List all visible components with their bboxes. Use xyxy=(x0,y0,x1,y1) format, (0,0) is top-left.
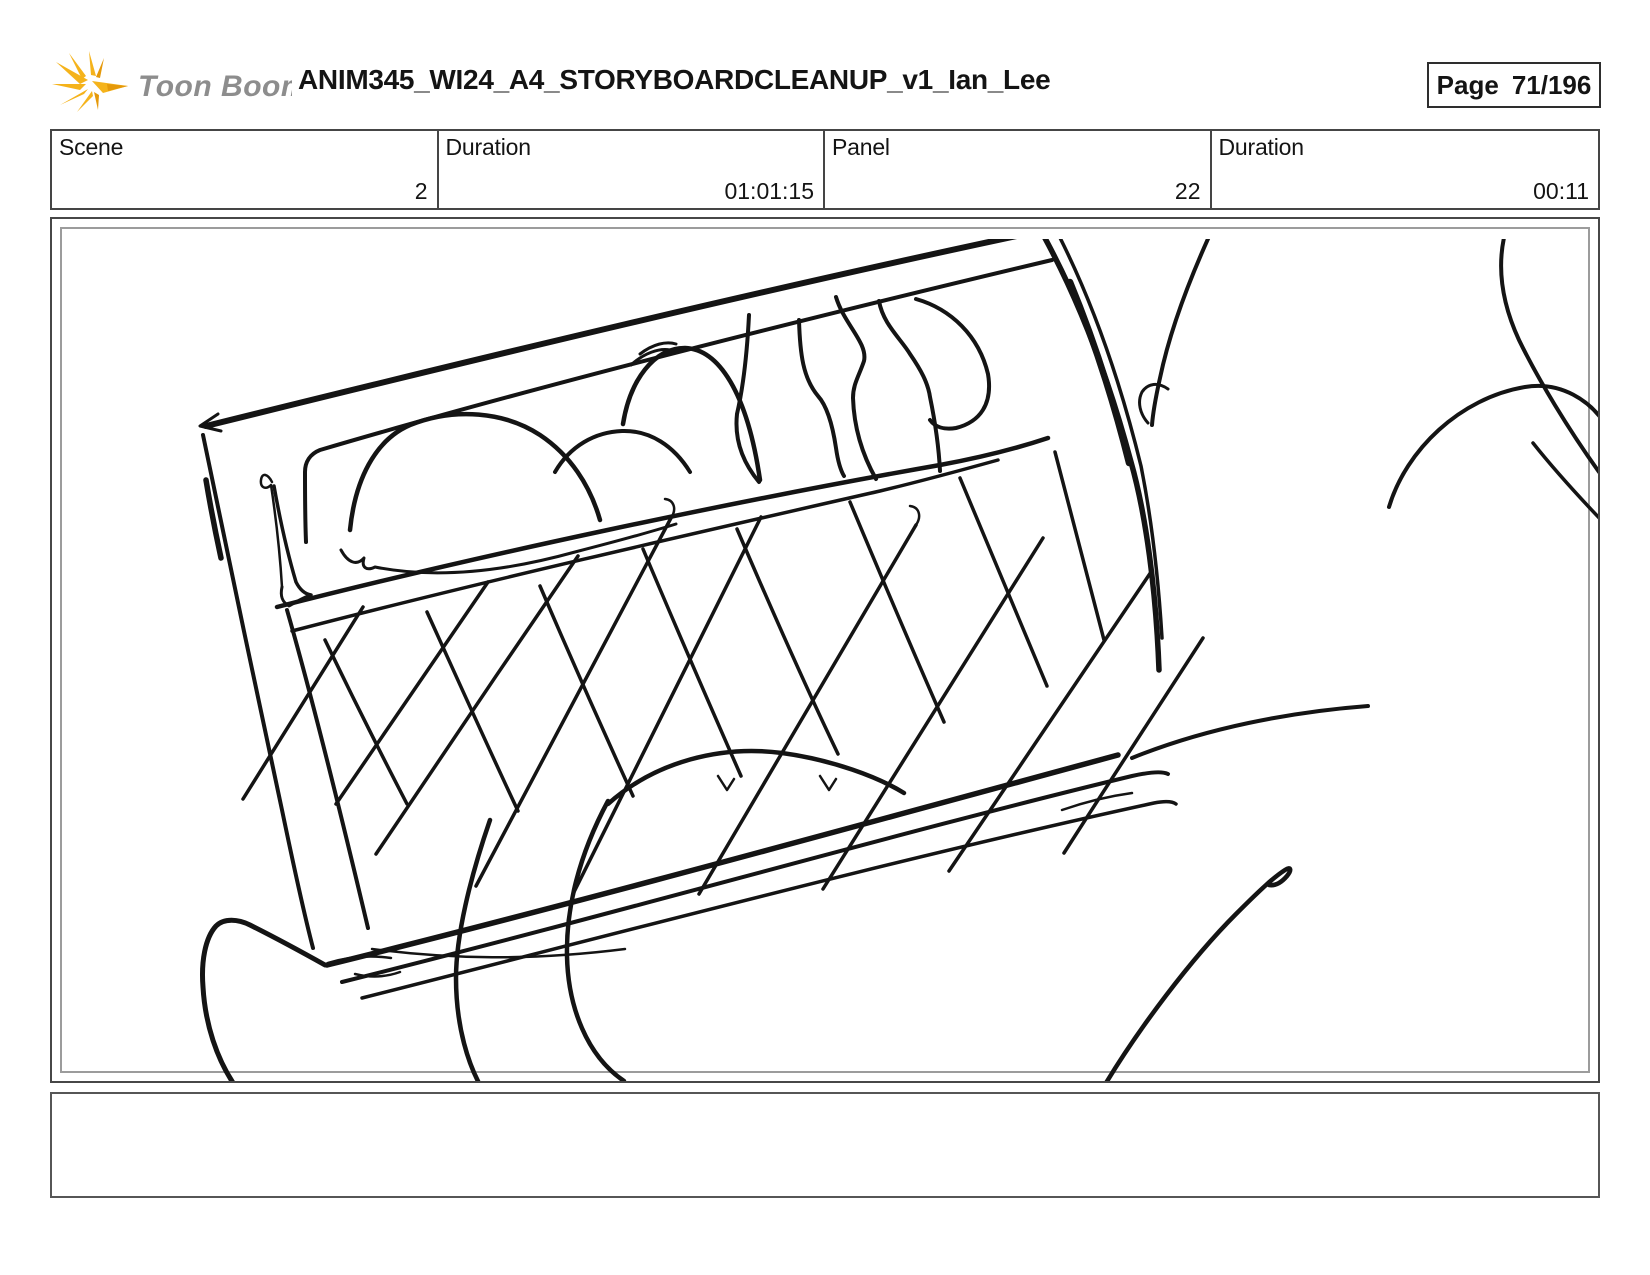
thumb-tip xyxy=(1106,868,1290,1081)
scene-duration-label: Duration xyxy=(446,134,531,161)
stick-item xyxy=(261,475,282,587)
page-number-box: Page 71/196 xyxy=(1427,62,1601,108)
scene-label: Scene xyxy=(59,134,123,161)
storyboard-page: Toon Boom ANIM345_WI24_A4_STORYBOARDCLEA… xyxy=(0,0,1650,1275)
scene-duration-cell: Duration 01:01:15 xyxy=(439,131,826,208)
storyboard-sketch xyxy=(72,239,1598,1081)
caption-box xyxy=(50,1092,1600,1198)
page-number-label: Page xyxy=(1437,70,1499,101)
panel-value: 22 xyxy=(1175,178,1201,205)
panel-info-row: Scene 2 Duration 01:01:15 Panel 22 Durat… xyxy=(50,129,1600,210)
scene-value: 2 xyxy=(415,178,428,205)
panel-duration-label: Duration xyxy=(1219,134,1304,161)
starburst-icon xyxy=(52,51,128,112)
lattice-crosshatch xyxy=(243,452,1203,928)
melon xyxy=(623,348,760,480)
jug xyxy=(916,299,989,429)
scene-cell: Scene 2 xyxy=(52,131,439,208)
panel-label: Panel xyxy=(832,134,890,161)
storyboard-drawing-panel xyxy=(50,217,1600,1083)
bottle-2 xyxy=(836,297,876,479)
page-title: ANIM345_WI24_A4_STORYBOARDCLEANUP_v1_Ian… xyxy=(298,64,1050,96)
panel-duration-value: 00:11 xyxy=(1533,178,1589,205)
crate-outline xyxy=(200,239,1212,948)
page-number-value: 71/196 xyxy=(1512,70,1592,101)
bottle-shelf-items xyxy=(261,297,1048,631)
panel-cell: Panel 22 xyxy=(825,131,1212,208)
toonboom-logo: Toon Boom xyxy=(52,48,292,114)
scene-duration-value: 01:01:15 xyxy=(724,178,814,205)
paw-shape xyxy=(203,920,325,1081)
panel-inner-border xyxy=(60,227,1590,1073)
background-scribbles xyxy=(1389,239,1598,523)
panel-duration-cell: Duration 00:11 xyxy=(1212,131,1599,208)
logo-text: Toon Boom xyxy=(138,70,292,103)
